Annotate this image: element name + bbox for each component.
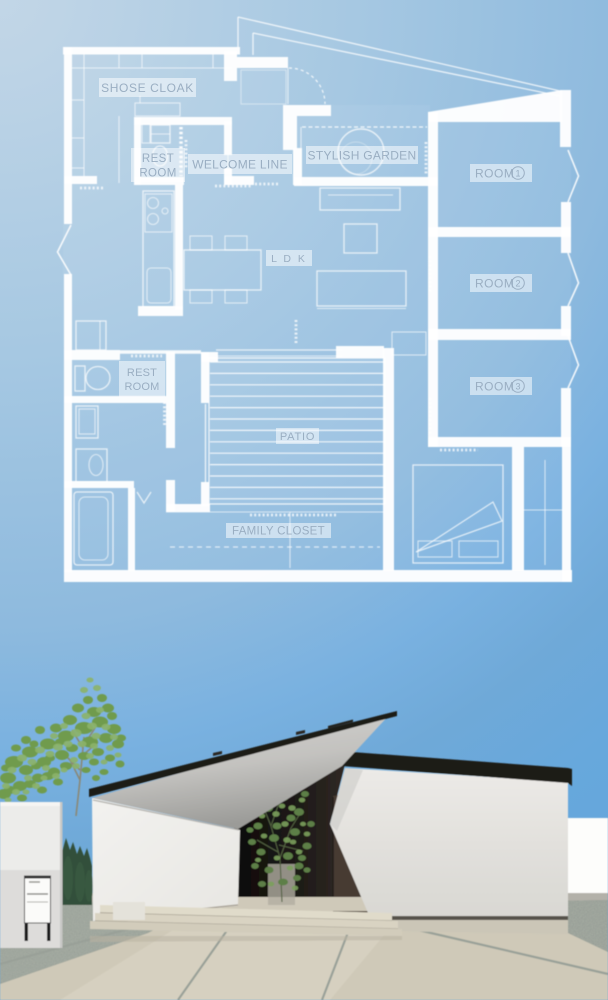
- svg-text:ROOM: ROOM: [475, 380, 514, 394]
- svg-text:ROOM: ROOM: [124, 381, 159, 393]
- svg-text:WELCOME LINE: WELCOME LINE: [192, 157, 288, 171]
- svg-text:SHOSE CLOAK: SHOSE CLOAK: [101, 81, 194, 95]
- svg-text:PATIO: PATIO: [280, 431, 315, 443]
- svg-text:STYLISH GARDEN: STYLISH GARDEN: [308, 148, 417, 162]
- svg-text:3: 3: [515, 381, 520, 391]
- svg-text:ROOM: ROOM: [139, 167, 176, 179]
- svg-text:ROOM: ROOM: [475, 277, 514, 291]
- svg-text:ROOM: ROOM: [475, 167, 514, 181]
- svg-text:2: 2: [515, 278, 520, 288]
- svg-text:1: 1: [515, 168, 520, 178]
- svg-text:L D K: L D K: [271, 253, 307, 265]
- svg-text:REST: REST: [127, 367, 157, 379]
- svg-text:REST: REST: [142, 153, 174, 165]
- svg-text:FAMILY CLOSET: FAMILY CLOSET: [232, 526, 325, 538]
